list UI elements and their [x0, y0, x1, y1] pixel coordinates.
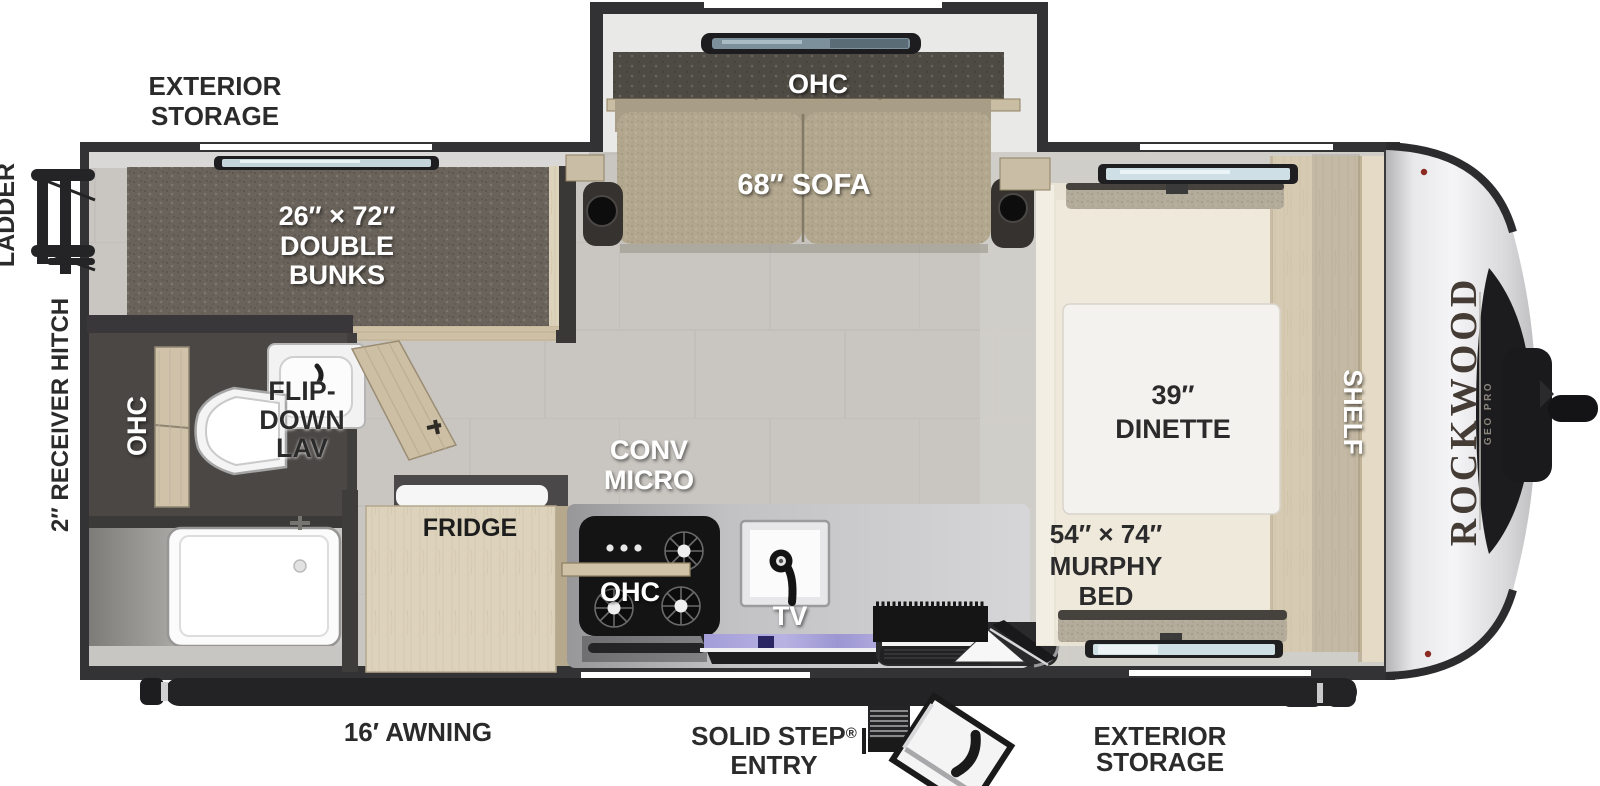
- svg-text:39″: 39″: [1152, 380, 1195, 410]
- svg-text:SHELF: SHELF: [1338, 369, 1368, 454]
- svg-text:DOWN: DOWN: [259, 405, 344, 435]
- svg-text:OHC: OHC: [122, 396, 152, 456]
- svg-text:54″ × 74″: 54″ × 74″: [1050, 519, 1162, 549]
- svg-text:STORAGE: STORAGE: [1096, 747, 1224, 777]
- svg-text:EXTERIOR: EXTERIOR: [149, 71, 282, 101]
- svg-text:LADDER: LADDER: [0, 163, 20, 267]
- svg-text:BUNKS: BUNKS: [289, 260, 385, 290]
- svg-text:STORAGE: STORAGE: [151, 101, 279, 131]
- svg-text:GEO PRO: GEO PRO: [1483, 381, 1494, 445]
- svg-text:DINETTE: DINETTE: [1115, 414, 1231, 444]
- svg-text:BED: BED: [1079, 581, 1134, 611]
- svg-text:ENTRY: ENTRY: [730, 750, 817, 780]
- svg-text:26″ × 72″: 26″ × 72″: [279, 201, 396, 231]
- svg-text:LAV: LAV: [276, 433, 328, 463]
- svg-text:DOUBLE: DOUBLE: [280, 231, 394, 261]
- svg-text:FRIDGE: FRIDGE: [423, 514, 517, 542]
- svg-text:MURPHY: MURPHY: [1050, 551, 1163, 581]
- svg-text:CONV: CONV: [610, 435, 688, 465]
- svg-text:16′ AWNING: 16′ AWNING: [344, 717, 492, 747]
- svg-text:MICRO: MICRO: [604, 465, 694, 495]
- svg-text:SOLID STEP®: SOLID STEP®: [691, 721, 857, 751]
- svg-text:ROCKWOOD: ROCKWOOD: [1443, 276, 1485, 547]
- svg-text:OHC: OHC: [600, 577, 660, 607]
- svg-text:2″ RECEIVER HITCH: 2″ RECEIVER HITCH: [47, 298, 74, 532]
- svg-text:68″ SOFA: 68″ SOFA: [737, 169, 870, 201]
- svg-text:FLIP-: FLIP-: [268, 376, 336, 406]
- svg-text:OHC: OHC: [788, 69, 848, 99]
- svg-text:TV: TV: [773, 601, 808, 631]
